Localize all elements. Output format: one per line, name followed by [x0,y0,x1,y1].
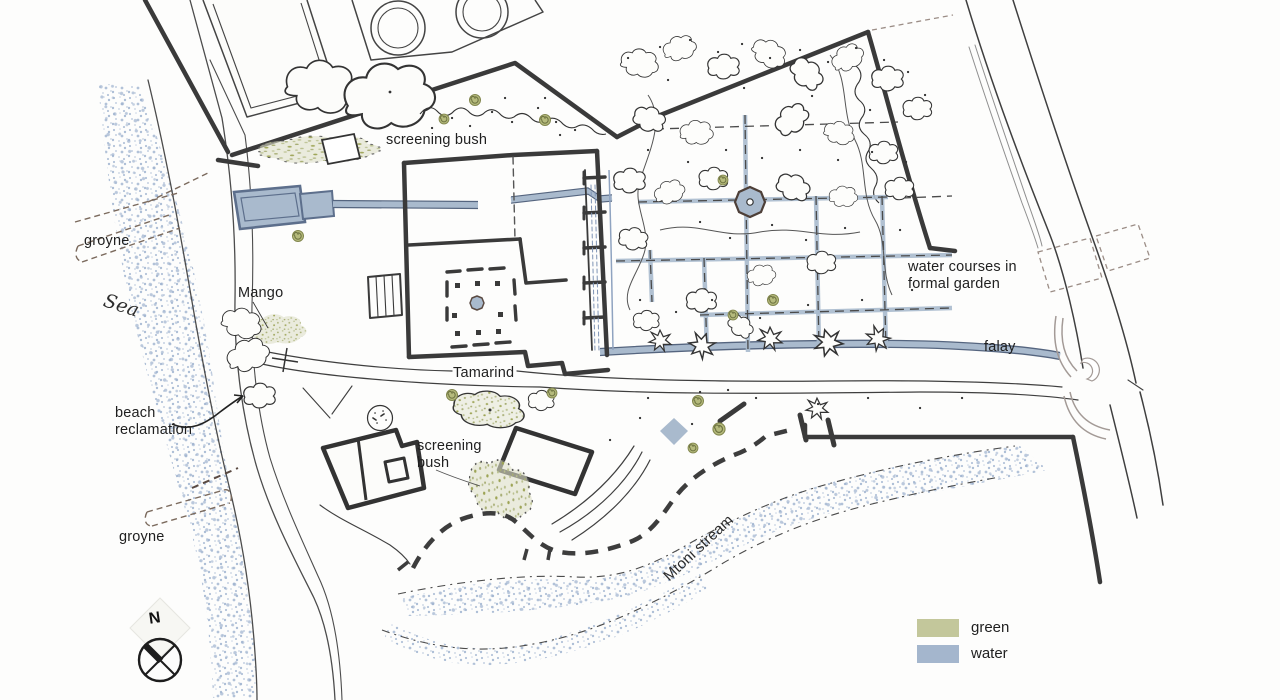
legend-row-water: water [917,644,1009,663]
label-mango: Mango [238,285,283,302]
label-tamarind: Tamarind [453,365,514,382]
legend-label-green: green [971,619,1009,636]
footpath-ticks [398,549,550,570]
water-tank [234,186,334,229]
formal-garden [614,32,952,419]
stream-crossing-marker [660,418,688,445]
label-compass-north: N [148,609,162,627]
label-groyne-top: groyne [84,233,130,250]
legend-swatch-green [917,619,959,637]
label-screening-bush-lower: screening bush [417,438,482,472]
palace-building [368,151,608,374]
sea-stipple-band [98,84,258,698]
label-screening-bush-top: screening bush [386,132,487,149]
legend-swatch-water [917,645,959,663]
site-plan-canvas: screening bush groyne Sea Mango beach re… [0,0,1280,700]
site-plan-drawing [0,0,1280,700]
compass-rose [130,598,190,681]
road-intersection-arcs [1055,316,1110,439]
legend-label-water: water [971,645,1008,662]
legend-row-green: green [917,618,1009,637]
legend: green water [917,618,1009,670]
label-groyne-lower: groyne [119,529,165,546]
screening-bush-top [255,134,383,165]
label-water-courses: water courses in formal garden [908,259,1017,293]
label-beach-reclamation: beach reclamation [115,405,192,439]
label-falay: falay [984,339,1016,356]
